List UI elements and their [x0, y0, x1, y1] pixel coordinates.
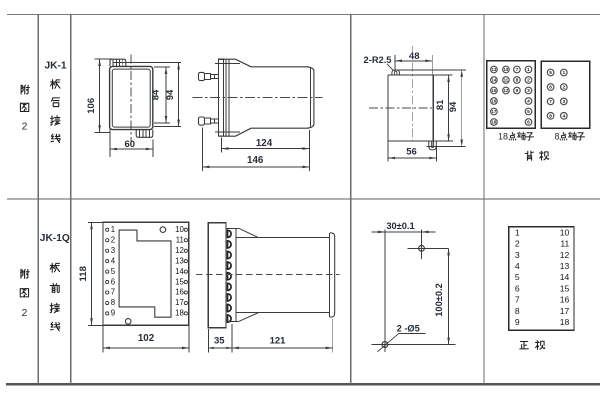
- svg-text:12: 12: [175, 246, 184, 255]
- svg-text:14: 14: [492, 78, 497, 83]
- svg-text:8: 8: [515, 306, 520, 316]
- svg-text:11: 11: [176, 235, 184, 244]
- svg-text:8: 8: [111, 298, 115, 307]
- svg-text:81: 81: [435, 99, 446, 110]
- svg-text:JK-1: JK-1: [44, 60, 66, 71]
- svg-text:118: 118: [78, 266, 89, 281]
- svg-text:16: 16: [492, 99, 497, 104]
- svg-text:2: 2: [527, 78, 530, 84]
- svg-text:1: 1: [515, 227, 520, 237]
- svg-text:121: 121: [270, 335, 287, 346]
- svg-text:3: 3: [527, 88, 530, 94]
- svg-text:7: 7: [111, 288, 115, 297]
- svg-text:4: 4: [527, 99, 530, 105]
- svg-text:5: 5: [111, 267, 116, 276]
- svg-text:9: 9: [111, 309, 115, 318]
- svg-text:5: 5: [527, 109, 530, 115]
- svg-text:84: 84: [151, 89, 162, 100]
- svg-text:15: 15: [560, 283, 570, 293]
- svg-text:2: 2: [562, 85, 565, 91]
- svg-text:2: 2: [111, 235, 115, 244]
- svg-text:10: 10: [560, 227, 570, 237]
- svg-text:124: 124: [256, 138, 273, 149]
- svg-text:30±0.1: 30±0.1: [386, 221, 414, 231]
- svg-text:13: 13: [175, 256, 184, 265]
- svg-text:35: 35: [214, 335, 225, 346]
- svg-text:17: 17: [175, 298, 184, 307]
- svg-text:4: 4: [562, 113, 565, 119]
- svg-text:18: 18: [498, 131, 508, 141]
- svg-text:146: 146: [247, 155, 264, 166]
- svg-text:7: 7: [516, 67, 519, 73]
- svg-text:7: 7: [549, 99, 552, 105]
- svg-text:17: 17: [560, 306, 570, 316]
- svg-text:14: 14: [175, 267, 184, 276]
- svg-text:4: 4: [515, 261, 520, 271]
- svg-text:102: 102: [138, 333, 155, 344]
- svg-text:16: 16: [175, 288, 184, 297]
- svg-text:12: 12: [504, 88, 509, 93]
- svg-text:10: 10: [175, 225, 184, 234]
- svg-text:JK-1Q: JK-1Q: [40, 233, 70, 244]
- svg-text:9: 9: [515, 317, 520, 327]
- svg-text:5: 5: [549, 70, 552, 76]
- svg-text:100±0.2: 100±0.2: [434, 283, 444, 317]
- svg-text:1: 1: [562, 70, 565, 76]
- svg-text:6: 6: [527, 120, 530, 126]
- svg-text:14: 14: [560, 272, 570, 282]
- svg-text:16: 16: [560, 295, 570, 305]
- svg-text:8: 8: [549, 113, 552, 119]
- svg-text:56: 56: [406, 147, 417, 158]
- svg-text:94: 94: [448, 101, 459, 112]
- svg-text:11: 11: [504, 78, 509, 83]
- svg-text:3: 3: [562, 99, 565, 105]
- svg-text:2 -Ø5: 2 -Ø5: [397, 324, 420, 334]
- svg-text:2: 2: [515, 239, 520, 249]
- svg-text:15: 15: [492, 88, 497, 93]
- svg-text:11: 11: [560, 239, 569, 249]
- svg-text:6: 6: [549, 85, 552, 91]
- svg-text:9: 9: [516, 88, 519, 94]
- svg-text:7: 7: [515, 295, 520, 305]
- svg-text:8: 8: [554, 131, 559, 141]
- svg-text:17: 17: [492, 109, 497, 114]
- svg-text:10: 10: [504, 67, 509, 72]
- svg-text:60: 60: [125, 139, 136, 150]
- svg-text:2: 2: [22, 120, 28, 132]
- svg-text:6: 6: [515, 283, 520, 293]
- svg-text:18: 18: [492, 120, 497, 125]
- svg-text:13: 13: [492, 67, 497, 72]
- svg-text:1: 1: [111, 225, 115, 234]
- svg-text:8: 8: [516, 78, 519, 84]
- svg-text:5: 5: [515, 272, 520, 282]
- svg-text:13: 13: [560, 261, 570, 271]
- svg-text:6: 6: [111, 277, 115, 286]
- svg-text:18: 18: [175, 309, 184, 318]
- svg-text:106: 106: [86, 98, 97, 114]
- svg-text:2: 2: [21, 307, 27, 319]
- svg-text:4: 4: [111, 256, 116, 265]
- svg-text:18: 18: [560, 317, 570, 327]
- svg-text:1: 1: [527, 67, 530, 73]
- svg-text:48: 48: [409, 51, 420, 62]
- svg-text:12: 12: [560, 250, 570, 260]
- svg-text:3: 3: [515, 250, 520, 260]
- svg-text:3: 3: [111, 246, 115, 255]
- svg-text:2-R2.5: 2-R2.5: [364, 55, 392, 65]
- svg-text:94: 94: [165, 89, 176, 100]
- svg-text:15: 15: [175, 277, 184, 286]
